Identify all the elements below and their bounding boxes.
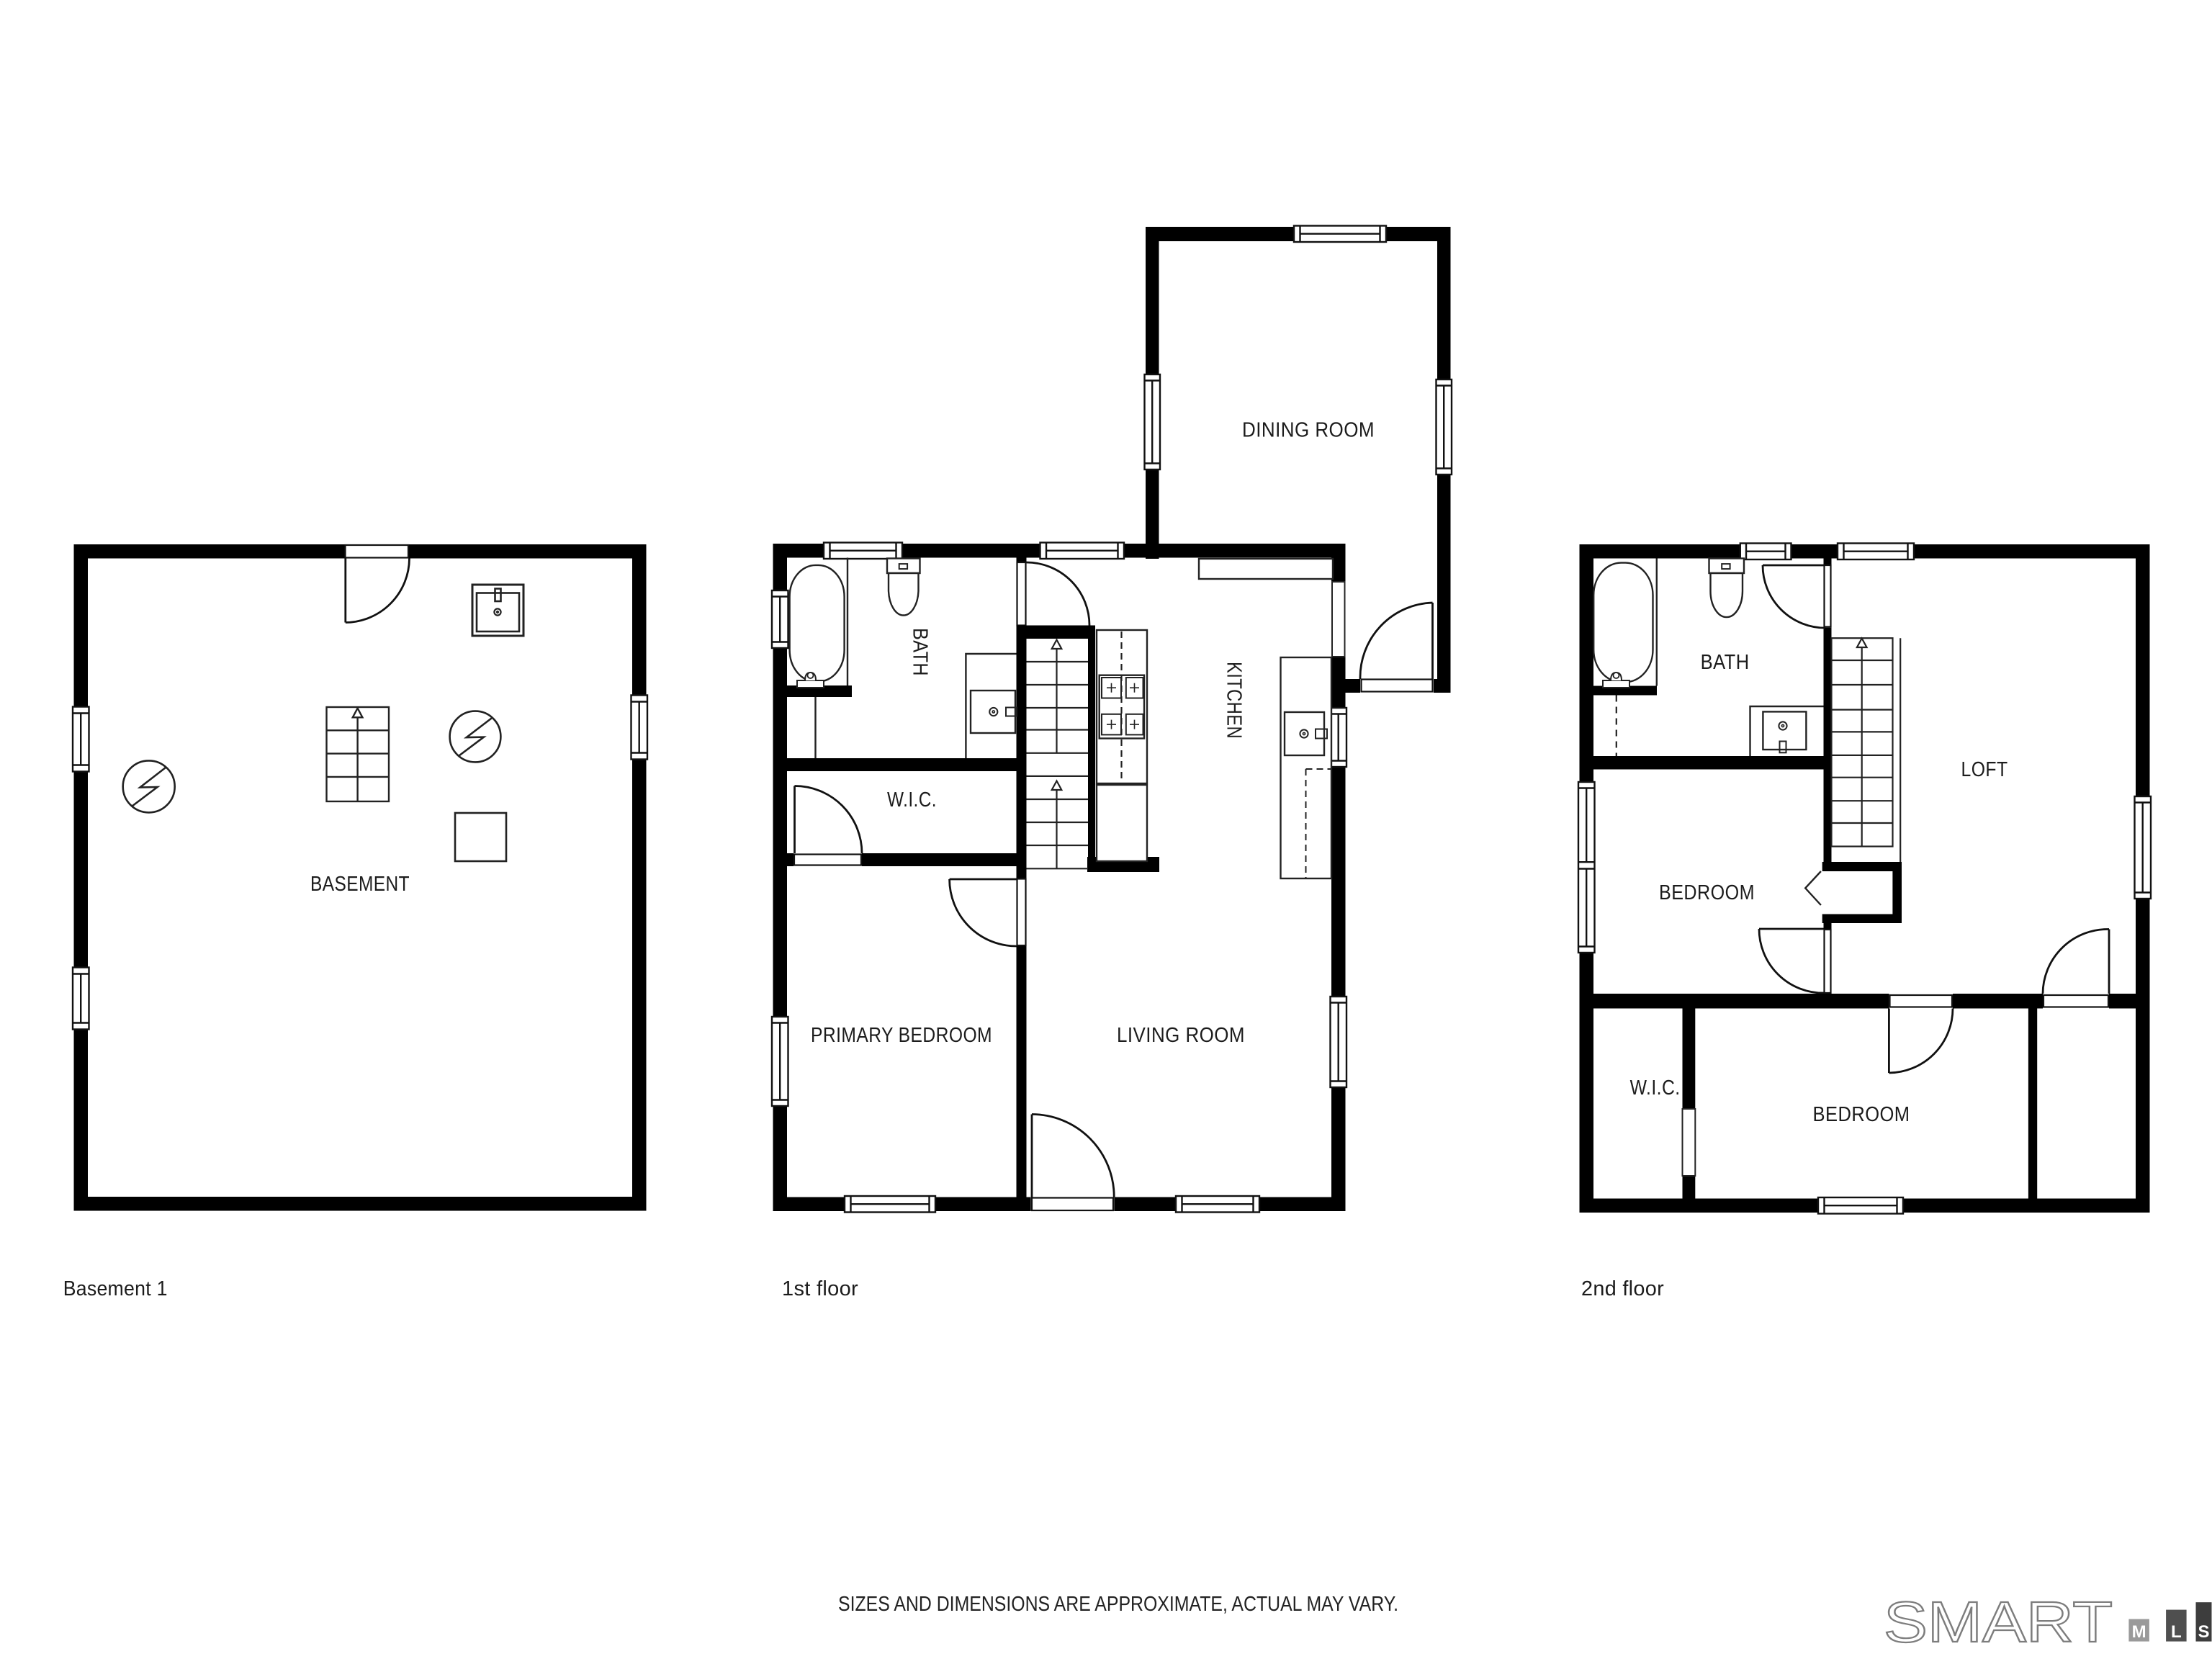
svg-text:W.I.C.: W.I.C. bbox=[887, 788, 937, 811]
svg-text:M: M bbox=[2132, 1622, 2146, 1642]
svg-text:BEDROOM: BEDROOM bbox=[1659, 881, 1755, 904]
svg-text:L: L bbox=[2171, 1622, 2182, 1642]
svg-text:1st floor: 1st floor bbox=[782, 1277, 858, 1300]
svg-text:SMART: SMART bbox=[1884, 1590, 2113, 1654]
svg-text:BATH: BATH bbox=[1701, 651, 1750, 674]
svg-text:Basement 1: Basement 1 bbox=[63, 1277, 168, 1300]
svg-text:2nd floor: 2nd floor bbox=[1581, 1277, 1664, 1300]
svg-text:PRIMARY BEDROOM: PRIMARY BEDROOM bbox=[811, 1024, 992, 1047]
svg-text:S: S bbox=[2198, 1622, 2209, 1642]
svg-text:LIVING ROOM: LIVING ROOM bbox=[1117, 1024, 1245, 1047]
svg-text:W.I.C.: W.I.C. bbox=[1630, 1076, 1681, 1100]
svg-text:KITCHEN: KITCHEN bbox=[1223, 662, 1246, 739]
svg-text:DINING ROOM: DINING ROOM bbox=[1242, 419, 1375, 442]
svg-text:BEDROOM: BEDROOM bbox=[1813, 1103, 1910, 1126]
svg-text:LOFT: LOFT bbox=[1961, 758, 2008, 781]
svg-text:SIZES AND DIMENSIONS ARE APPRO: SIZES AND DIMENSIONS ARE APPROXIMATE, AC… bbox=[838, 1593, 1398, 1616]
svg-text:BATH: BATH bbox=[909, 628, 932, 676]
svg-text:BASEMENT: BASEMENT bbox=[310, 873, 410, 896]
